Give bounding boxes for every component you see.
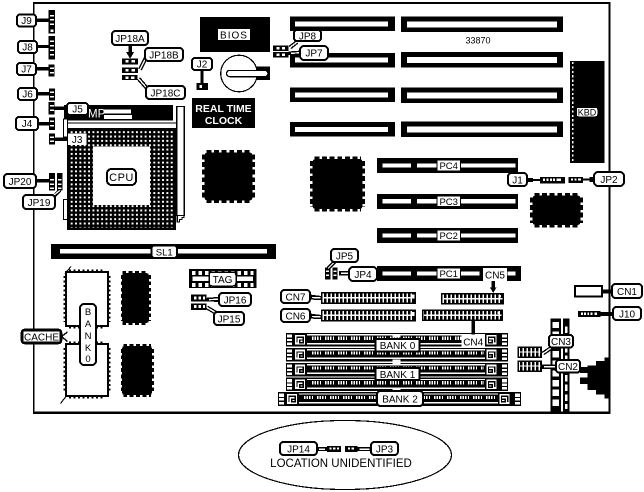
svg-text:LOCATION UNIDENTIFIED: LOCATION UNIDENTIFIED (270, 458, 412, 470)
svg-text:JP7: JP7 (305, 49, 323, 60)
svg-text:J9: J9 (21, 16, 32, 27)
svg-text:JP18C: JP18C (150, 89, 180, 100)
svg-text:JP16: JP16 (224, 296, 247, 307)
svg-text:BANK 1: BANK 1 (380, 370, 416, 381)
svg-text:J4: J4 (22, 119, 33, 130)
svg-text:J8: J8 (22, 43, 33, 54)
svg-text:PC4: PC4 (439, 161, 457, 172)
svg-text:SL1: SL1 (156, 248, 173, 259)
svg-text:KBD: KBD (578, 108, 597, 118)
svg-text:JP20: JP20 (9, 177, 32, 188)
svg-text:BANK 0: BANK 0 (380, 341, 416, 352)
svg-text:JP18B: JP18B (149, 51, 179, 62)
svg-text:J3: J3 (72, 135, 83, 146)
svg-text:JP14: JP14 (287, 445, 310, 456)
svg-text:PC3: PC3 (439, 197, 457, 208)
svg-text:CPU: CPU (109, 172, 134, 184)
svg-text:CN4: CN4 (463, 338, 483, 349)
svg-text:0: 0 (85, 354, 90, 365)
svg-text:BIOS: BIOS (220, 31, 248, 42)
svg-text:N: N (85, 331, 92, 342)
svg-text:JP15: JP15 (218, 315, 241, 326)
svg-text:CN7: CN7 (285, 293, 305, 304)
svg-text:CACHE: CACHE (24, 333, 59, 344)
svg-text:JP18A: JP18A (115, 34, 145, 45)
svg-text:J2: J2 (197, 60, 208, 71)
svg-text:A: A (85, 319, 92, 330)
svg-text:B: B (85, 307, 91, 318)
svg-text:REAL TIME: REAL TIME (195, 103, 251, 115)
svg-text:MP: MP (88, 109, 106, 121)
svg-text:CN3: CN3 (551, 337, 571, 348)
svg-text:CN1: CN1 (617, 287, 637, 298)
svg-text:JP19: JP19 (28, 198, 51, 209)
svg-text:TAG: TAG (213, 275, 233, 286)
svg-text:33870: 33870 (465, 36, 490, 46)
svg-text:JP2: JP2 (600, 175, 618, 186)
svg-text:PC1: PC1 (439, 269, 457, 280)
svg-text:JP8: JP8 (299, 32, 317, 43)
svg-text:J10: J10 (619, 310, 636, 321)
svg-text:JP4: JP4 (354, 270, 372, 281)
svg-text:PC2: PC2 (439, 231, 457, 242)
svg-text:CN6: CN6 (285, 312, 305, 323)
svg-text:CN5: CN5 (485, 271, 505, 282)
svg-text:K: K (85, 343, 92, 354)
svg-text:JP3: JP3 (376, 445, 394, 456)
svg-text:CLOCK: CLOCK (205, 115, 243, 127)
svg-text:CN2: CN2 (558, 362, 578, 373)
svg-text:JP5: JP5 (336, 252, 354, 263)
svg-text:J7: J7 (21, 65, 32, 76)
svg-text:J5: J5 (72, 105, 83, 116)
svg-text:J1: J1 (512, 176, 523, 187)
svg-text:BANK 2: BANK 2 (382, 395, 418, 406)
svg-text:J6: J6 (22, 90, 33, 101)
